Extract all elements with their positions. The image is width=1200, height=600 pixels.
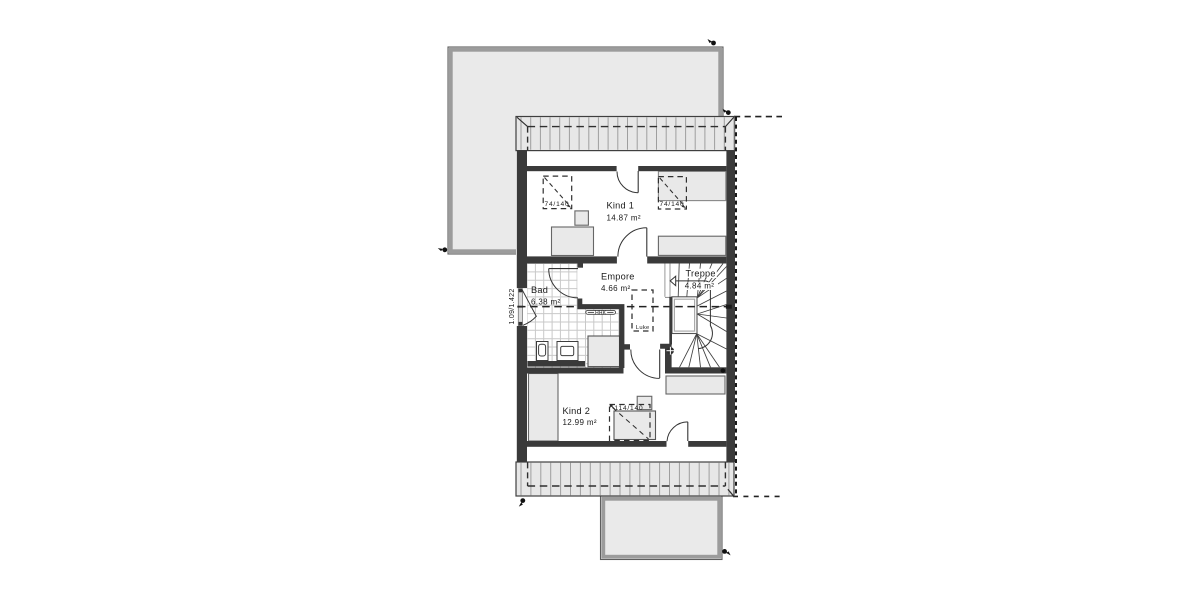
svg-text:114/140: 114/140: [615, 405, 644, 412]
svg-text:6.38 m²: 6.38 m²: [531, 298, 561, 307]
svg-text:4.84 m²: 4.84 m²: [685, 282, 715, 291]
svg-text:Bad: Bad: [531, 285, 548, 295]
svg-text:74/140: 74/140: [660, 201, 685, 208]
svg-text:Empore: Empore: [601, 272, 635, 282]
svg-text:Kind 2: Kind 2: [563, 406, 591, 416]
svg-text:12.99 m²: 12.99 m²: [563, 418, 597, 427]
svg-text:Treppe: Treppe: [686, 269, 716, 279]
svg-text:1.09/1.422: 1.09/1.422: [509, 288, 516, 324]
svg-text:14.87 m²: 14.87 m²: [607, 214, 641, 223]
svg-text:Kind 1: Kind 1: [607, 201, 635, 211]
svg-text:74/140: 74/140: [545, 201, 570, 208]
svg-text:4.66 m²: 4.66 m²: [601, 284, 631, 293]
svg-text:Luke: Luke: [636, 325, 650, 331]
svg-text:HHK: HHK: [595, 311, 607, 317]
